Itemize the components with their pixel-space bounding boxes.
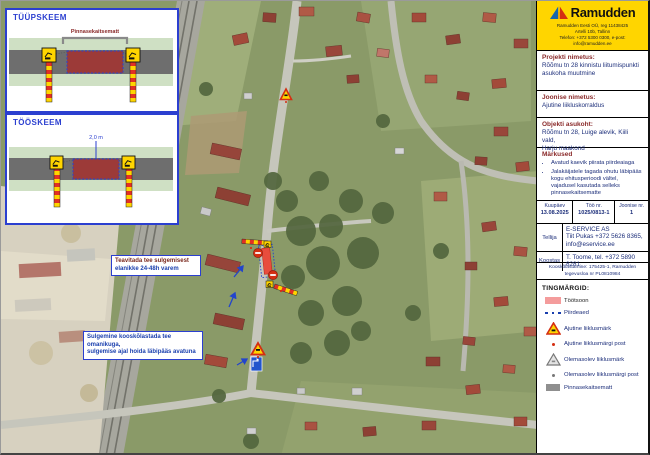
typical-scheme-1: TÜÜPSKEEM Pinnasekaitsematt: [5, 8, 179, 113]
roadwork-sign-icon: [122, 156, 135, 169]
remarks-section: Märkused Avatud kaevik piirata piirdeaia…: [537, 148, 648, 201]
excavation-area: [67, 51, 123, 73]
ramudden-logo-icon: [550, 5, 568, 20]
legend-label: Ajutine liiklusmärgi post: [564, 341, 626, 347]
legend-label: Piirdeaed: [564, 310, 589, 316]
excavation-area: [73, 159, 119, 179]
approval-section: Kooskõlastamine: 175425-1, Ramudden tege…: [537, 263, 648, 280]
client-section: Tellija E-SERVICE AS Tiit Pukas +372 562…: [537, 224, 648, 252]
remark-item: Jalakäijatele tagada ohutu läbipääs kogu…: [551, 169, 643, 197]
note-line: Sulgemine kooskõlastada tee omanikuga,: [87, 334, 199, 349]
approval-line: Kooskõlastamine: 175425-1, Ramudden: [539, 265, 646, 272]
legend-label: Olemasolev liiklusmärgi post: [564, 372, 639, 378]
roadwork-sign-icon: [266, 281, 273, 288]
drawing-label: Joonise nimetus:: [542, 94, 643, 102]
existing-post-dot-icon: [552, 374, 555, 377]
ground-mat-swatch: [546, 384, 560, 391]
date-label: Kuupäev: [537, 203, 572, 209]
remarks-label: Märkused: [542, 151, 643, 159]
legend-title: TINGMÄRGID:: [542, 285, 643, 292]
scheme2-drawing: 2,0 m: [7, 127, 175, 217]
sheet-number-value: 1: [615, 210, 648, 216]
client-contact: Tiit Pukas +372 5626 8365,: [566, 233, 645, 241]
roadwork-sign-icon: [264, 241, 271, 248]
object-location-section: Objekti asukoht: Rõõmu tn 28, Luige alev…: [537, 118, 648, 148]
roadwork-sign-icon: [50, 156, 63, 169]
temporary-post-dot-icon: [552, 343, 555, 346]
company-logo-panel: Ramudden Ramudden Eesti OÜ, reg 11438425…: [537, 1, 648, 51]
note-line: sulgemise ajal hoida läbipääs avatuna: [87, 349, 199, 357]
mat-label: Pinnasekaitsematt: [71, 29, 119, 35]
approval-line: tegevusloa nr PL0810984: [539, 272, 646, 279]
company-contact-line: Telefon: +372 5300 0300, e-post: info@ra…: [540, 35, 645, 47]
drawing-value: Ajutine liikluskorraldus: [542, 102, 643, 110]
legend-item-work-area: Töötsoon: [542, 297, 643, 304]
legend-item-existing-sign: Olemasolev liiklusmärk: [542, 353, 643, 366]
drawing-name-section: Joonise nimetus: Ajutine liikluskorraldu…: [537, 91, 648, 118]
work-number-value: 1025/0813-1: [573, 210, 614, 216]
legend-item-ground-mat: Pinnasekaitsematt: [542, 384, 643, 391]
legend-label: Olemasolev liiklusmärk: [564, 357, 624, 363]
existing-sign-icon: [546, 353, 561, 366]
remarks-list: Avatud kaevik piirata piirdeaiaga Jalakä…: [551, 160, 643, 197]
location-value: Rõõmu tn 28, Luige alevik, Kiili vald,: [542, 129, 643, 145]
author-section: Koostas T. Toome, tel. +372 5890 8281: [537, 252, 648, 263]
project-name-section: Projekti nimetus: Rõõmu tn 28 kinnistu l…: [537, 51, 648, 91]
legend-item-existing-post: Olemasolev liiklusmärgi post: [542, 372, 643, 378]
legend-item-temporary-sign: Ajutine liiklusmärk: [542, 322, 643, 335]
width-dimension-label: 2,0 m: [89, 135, 103, 141]
project-value: asukoha muutmine: [542, 70, 643, 78]
scheme1-drawing: Pinnasekaitsematt: [7, 22, 175, 106]
detour-info-sign-icon: [251, 357, 262, 371]
client-email: info@eservice.ee: [566, 241, 645, 249]
temporary-sign-icon: [546, 322, 561, 335]
work-number-cell: Töö nr. 1025/0813-1: [573, 201, 615, 223]
work-number-label: Töö nr.: [573, 203, 614, 209]
roadwork-sign-icon: [126, 48, 140, 62]
roadwork-sign-icon: [42, 48, 56, 62]
legend-label: Ajutine liiklusmärk: [564, 326, 611, 332]
note-line: Teavitada tee sulgemisest: [115, 258, 197, 266]
sheet-number-cell: Joonise nr. 1: [615, 201, 648, 223]
location-label: Objekti asukoht:: [542, 121, 643, 129]
client-label: Tellija: [537, 224, 563, 251]
legend-item-fence: Piirdeaed: [542, 310, 643, 316]
note-line: elanikke 24-48h varem: [115, 266, 197, 274]
traffic-plan-sheet: TÜÜPSKEEM Pinnasekaitsematt: [0, 0, 650, 455]
remark-item: Avatud kaevik piirata piirdeaiaga: [551, 160, 643, 167]
drawing-meta-table: Kuupäev 13.08.2025 Töö nr. 1025/0813-1 J…: [537, 201, 648, 224]
work-area-swatch: [545, 297, 561, 304]
map-note-closure-coordination: Sulgemine kooskõlastada tee omanikuga, s…: [83, 331, 203, 360]
scheme2-title: TÖÖSKEEM: [7, 115, 177, 127]
date-cell: Kuupäev 13.08.2025: [537, 201, 573, 223]
map-note-closure-notice: Teavitada tee sulgemisest elanikke 24-48…: [111, 255, 201, 276]
typical-scheme-2: TÖÖSKEEM 2,0 m: [5, 113, 179, 225]
client-name: E-SERVICE AS: [566, 226, 645, 234]
project-value: Rõõmu tn 28 kinnistu liitumispunkti: [542, 62, 643, 70]
title-block: Ramudden Ramudden Eesti OÜ, reg 11438425…: [536, 1, 648, 455]
project-label: Projekti nimetus:: [542, 54, 643, 62]
date-value: 13.08.2025: [537, 210, 572, 216]
sheet-number-label: Joonise nr.: [615, 203, 648, 209]
brand-name: Ramudden: [571, 5, 636, 20]
scheme1-title: TÜÜPSKEEM: [7, 10, 177, 22]
legend-label: Pinnasekaitsematt: [564, 385, 612, 391]
legend-label: Töötsoon: [564, 298, 589, 304]
fence-dots-icon: [545, 312, 561, 315]
legend-section: TINGMÄRGID: Töötsoon Piirdeaed Ajutine l…: [537, 280, 648, 455]
legend-item-temporary-post: Ajutine liiklusmärgi post: [542, 341, 643, 347]
